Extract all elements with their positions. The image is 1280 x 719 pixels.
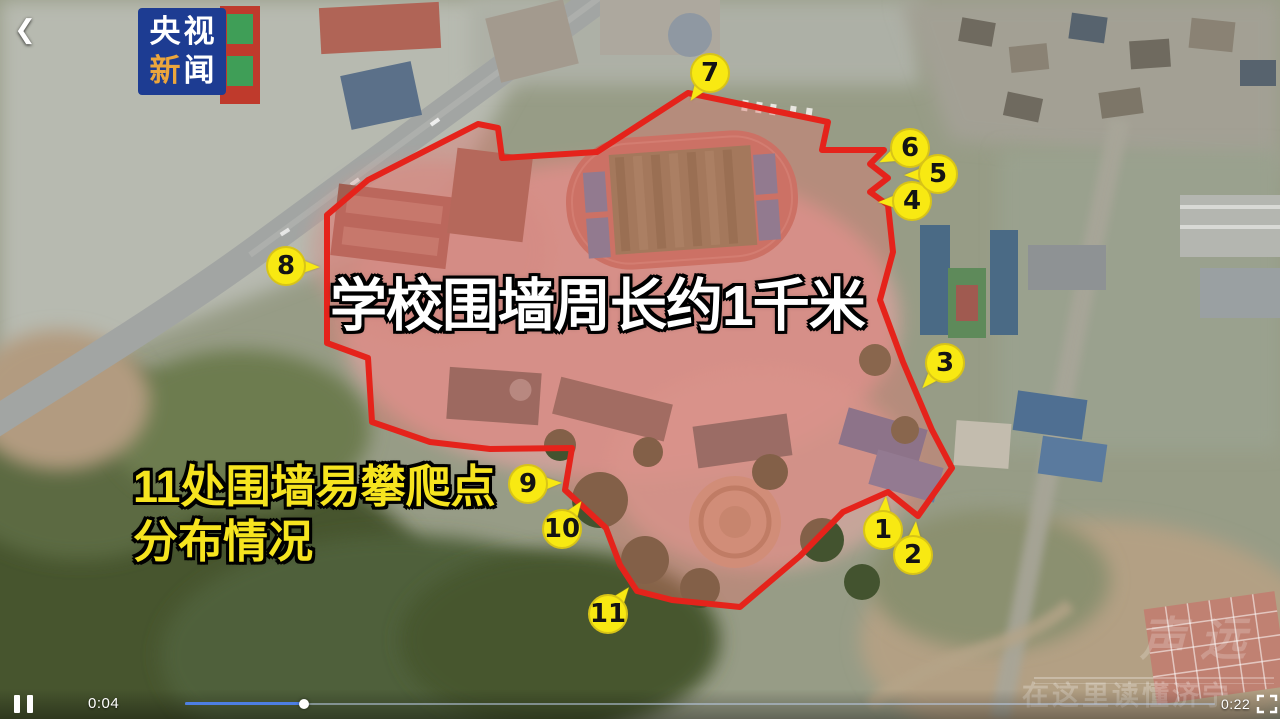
fullscreen-icon xyxy=(1256,694,1278,714)
progress-thumb[interactable] xyxy=(299,699,309,709)
pause-button[interactable] xyxy=(14,695,38,713)
player-control-bar: 0:04 0:22 xyxy=(0,689,1280,719)
logo-accent-char: 新 xyxy=(150,53,184,88)
fullscreen-button[interactable] xyxy=(1256,694,1278,714)
perimeter-title: 学校围墙周长约1千米 xyxy=(330,260,890,342)
cctv-news-logo: 央视 新闻 xyxy=(138,8,226,95)
progress-track xyxy=(185,703,1215,705)
logo-row1: 央视 xyxy=(150,13,218,52)
video-player: 1234567891011 学校围墙周长约1千米 11处围墙易攀爬点 分布情况 … xyxy=(0,0,1280,719)
climb-points-caption: 11处围墙易攀爬点 分布情况 xyxy=(133,460,496,570)
aerial-map-video-surface[interactable] xyxy=(0,0,1280,719)
caption-line1: 11处围墙易攀爬点 xyxy=(133,460,496,515)
logo-row2: 新闻 xyxy=(150,52,218,91)
caption-line2: 分布情况 xyxy=(133,515,496,570)
pause-icon xyxy=(14,695,20,713)
current-time: 0:04 xyxy=(88,695,119,712)
progress-bar[interactable] xyxy=(185,702,1215,706)
progress-played xyxy=(185,702,304,705)
duration-time: 0:22 xyxy=(1221,696,1250,712)
back-chevron-icon: ❮ xyxy=(14,14,36,45)
pause-icon xyxy=(27,695,33,713)
back-button[interactable]: ❮ xyxy=(12,14,38,44)
